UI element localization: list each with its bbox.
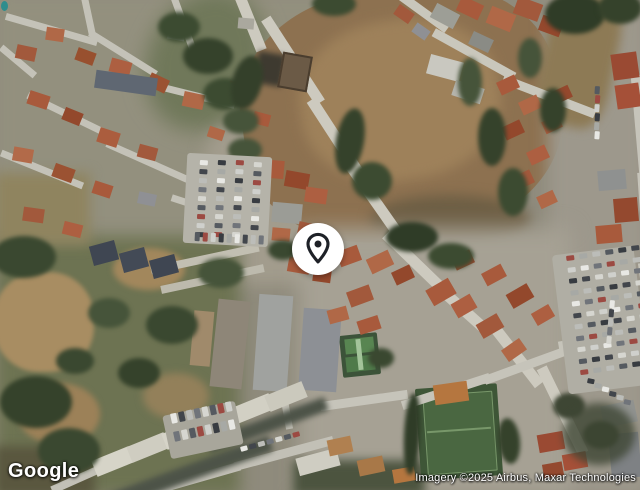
car — [631, 245, 640, 251]
car — [197, 205, 205, 210]
car — [595, 274, 604, 280]
car — [619, 258, 628, 264]
car — [199, 178, 207, 183]
tree-cluster — [478, 108, 506, 166]
car — [605, 354, 614, 360]
car — [215, 205, 223, 210]
car — [252, 198, 260, 203]
car — [250, 235, 255, 244]
car — [631, 350, 640, 356]
car — [619, 363, 628, 369]
car — [234, 234, 239, 243]
car — [203, 232, 208, 241]
car — [594, 113, 600, 121]
car — [618, 247, 627, 253]
house — [595, 224, 622, 244]
tree-cluster — [0, 376, 72, 428]
car — [254, 162, 262, 167]
tree-cluster — [198, 258, 244, 288]
tree-cluster — [458, 58, 482, 106]
car — [196, 223, 204, 228]
car — [585, 299, 594, 305]
car — [613, 318, 622, 324]
car — [594, 131, 600, 139]
car — [635, 279, 640, 285]
apartment-block — [271, 202, 303, 225]
tree-cluster — [540, 88, 566, 132]
car — [251, 207, 259, 212]
car — [598, 297, 607, 303]
car — [218, 160, 226, 165]
car — [275, 436, 283, 443]
car — [593, 262, 602, 268]
car — [621, 270, 630, 276]
tree-cluster — [223, 108, 259, 134]
car — [214, 223, 222, 228]
car — [599, 308, 608, 314]
car — [232, 223, 240, 228]
slab-building — [253, 294, 294, 392]
car — [218, 233, 223, 242]
car — [583, 287, 592, 293]
car — [618, 352, 627, 358]
car — [200, 160, 208, 165]
brick-building — [610, 51, 639, 80]
location-pin-icon — [303, 231, 333, 269]
car — [235, 169, 243, 174]
car — [615, 329, 624, 335]
imagery-attribution: Imagery ©2025 Airbus, Maxar Technologies — [415, 472, 636, 484]
car — [573, 312, 582, 318]
car — [199, 169, 207, 174]
tree-cluster — [118, 358, 160, 388]
car — [250, 225, 258, 230]
ruin-building — [277, 52, 313, 93]
house — [238, 17, 255, 29]
car — [609, 283, 618, 289]
car — [242, 235, 247, 244]
car — [594, 104, 600, 112]
car — [569, 278, 578, 284]
car — [253, 180, 261, 185]
car — [594, 122, 600, 130]
car — [622, 281, 631, 287]
map-viewport[interactable]: Google Imagery ©2025 Airbus, Maxar Techn… — [0, 0, 640, 490]
swimming-pool — [1, 1, 8, 11]
brick-building — [613, 197, 639, 223]
car — [195, 232, 200, 241]
car — [609, 309, 615, 317]
car — [580, 369, 589, 375]
car — [567, 266, 576, 272]
car — [216, 196, 224, 201]
car — [589, 333, 598, 339]
car — [582, 276, 591, 282]
car — [629, 338, 638, 344]
car — [608, 318, 614, 326]
car — [197, 214, 205, 219]
tree-shadow-mass — [563, 403, 635, 465]
car — [608, 272, 617, 278]
house — [22, 207, 45, 224]
car — [624, 293, 633, 299]
tree-cluster — [352, 162, 392, 200]
car — [607, 327, 613, 335]
car — [579, 358, 588, 364]
car — [596, 285, 605, 291]
car — [215, 214, 223, 219]
car — [570, 289, 579, 295]
tree-cluster — [498, 168, 528, 216]
car — [216, 187, 224, 192]
car — [217, 178, 225, 183]
tree-cluster — [88, 298, 130, 328]
car — [632, 361, 640, 367]
car — [226, 234, 231, 243]
car — [253, 171, 261, 176]
car — [266, 438, 274, 445]
map-marker[interactable] — [292, 223, 344, 275]
house — [304, 187, 328, 205]
car — [233, 205, 241, 210]
tree-cluster — [428, 243, 474, 269]
car — [198, 196, 206, 201]
tree-cluster — [158, 12, 200, 42]
car — [606, 336, 612, 344]
car — [579, 253, 588, 259]
car — [236, 160, 244, 165]
car — [233, 214, 241, 219]
soccer-field-inner — [422, 391, 497, 476]
car — [580, 264, 589, 270]
car — [592, 356, 601, 362]
car — [283, 434, 291, 441]
car — [606, 260, 615, 266]
car — [593, 367, 602, 373]
car — [592, 251, 601, 257]
car — [626, 316, 635, 322]
car — [566, 255, 575, 261]
car — [211, 233, 216, 242]
car — [198, 187, 206, 192]
car — [587, 322, 596, 328]
google-logo[interactable]: Google — [8, 460, 79, 483]
car — [234, 196, 242, 201]
car — [235, 178, 243, 183]
car — [252, 189, 260, 194]
car — [632, 256, 640, 262]
car — [251, 216, 259, 221]
tree-cluster — [518, 38, 542, 78]
car — [609, 300, 615, 308]
car — [628, 327, 637, 333]
car — [590, 344, 599, 350]
car — [234, 187, 242, 192]
car — [594, 95, 600, 103]
car — [577, 346, 586, 352]
tree-cluster — [368, 348, 394, 368]
house — [45, 27, 65, 42]
tree-cluster — [146, 306, 198, 344]
car — [594, 86, 600, 94]
car — [605, 249, 614, 255]
car — [586, 310, 595, 316]
car — [217, 169, 225, 174]
car — [574, 324, 583, 330]
car — [637, 291, 640, 297]
car — [576, 335, 585, 341]
car — [258, 235, 263, 244]
tree-cluster — [183, 38, 233, 74]
car — [616, 340, 625, 346]
tree-cluster — [386, 222, 438, 252]
car — [606, 365, 615, 371]
car — [572, 301, 581, 307]
brick-building — [614, 82, 640, 109]
car — [634, 268, 640, 274]
tree-cluster — [56, 348, 94, 374]
car — [625, 304, 634, 310]
gray-building — [597, 169, 627, 191]
